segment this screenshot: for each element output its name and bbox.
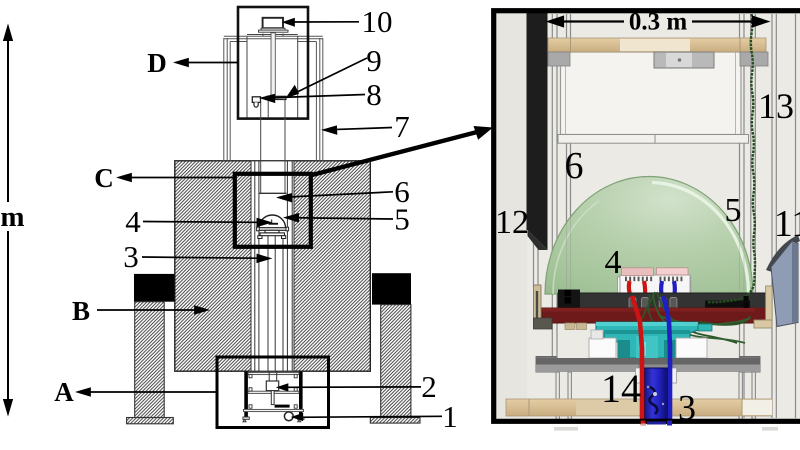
svg-text:m: m: [0, 201, 24, 233]
svg-text:10: 10: [362, 4, 393, 39]
svg-text:1: 1: [442, 399, 458, 434]
svg-text:C: C: [94, 163, 114, 193]
svg-text:D: D: [147, 48, 167, 78]
svg-text:2: 2: [421, 369, 437, 404]
svg-text:14: 14: [601, 366, 641, 411]
svg-text:5: 5: [725, 192, 742, 229]
svg-text:6: 6: [565, 145, 584, 187]
svg-text:4: 4: [605, 244, 622, 281]
svg-text:8: 8: [366, 77, 382, 112]
svg-text:11: 11: [774, 203, 800, 245]
svg-text:7: 7: [394, 109, 410, 144]
svg-text:A: A: [54, 377, 74, 407]
svg-text:12: 12: [495, 204, 529, 241]
svg-text:4: 4: [125, 204, 141, 239]
svg-text:B: B: [72, 296, 90, 326]
svg-text:9: 9: [366, 43, 382, 78]
svg-text:3: 3: [123, 239, 139, 274]
svg-text:5: 5: [394, 202, 410, 237]
svg-text:13: 13: [758, 86, 794, 126]
